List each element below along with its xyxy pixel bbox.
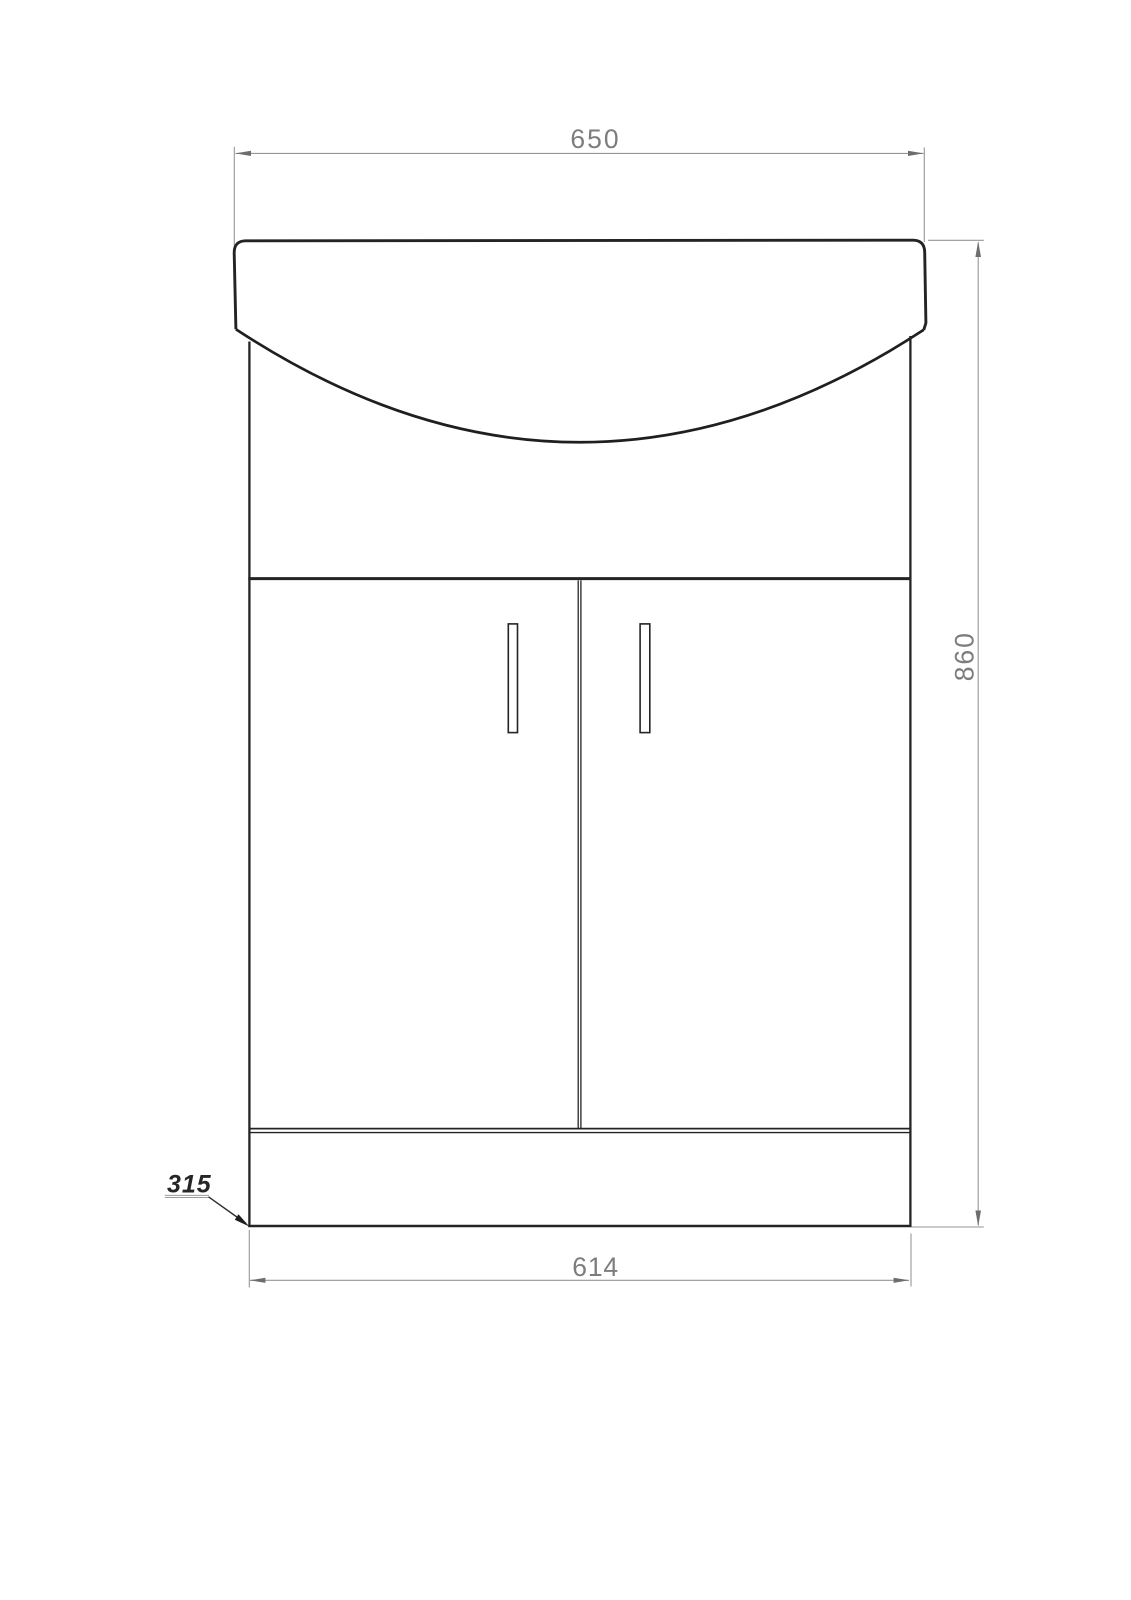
svg-text:614: 614 <box>572 1252 619 1282</box>
svg-text:315: 315 <box>167 1170 212 1198</box>
svg-text:860: 860 <box>950 631 980 681</box>
svg-text:650: 650 <box>570 124 620 154</box>
